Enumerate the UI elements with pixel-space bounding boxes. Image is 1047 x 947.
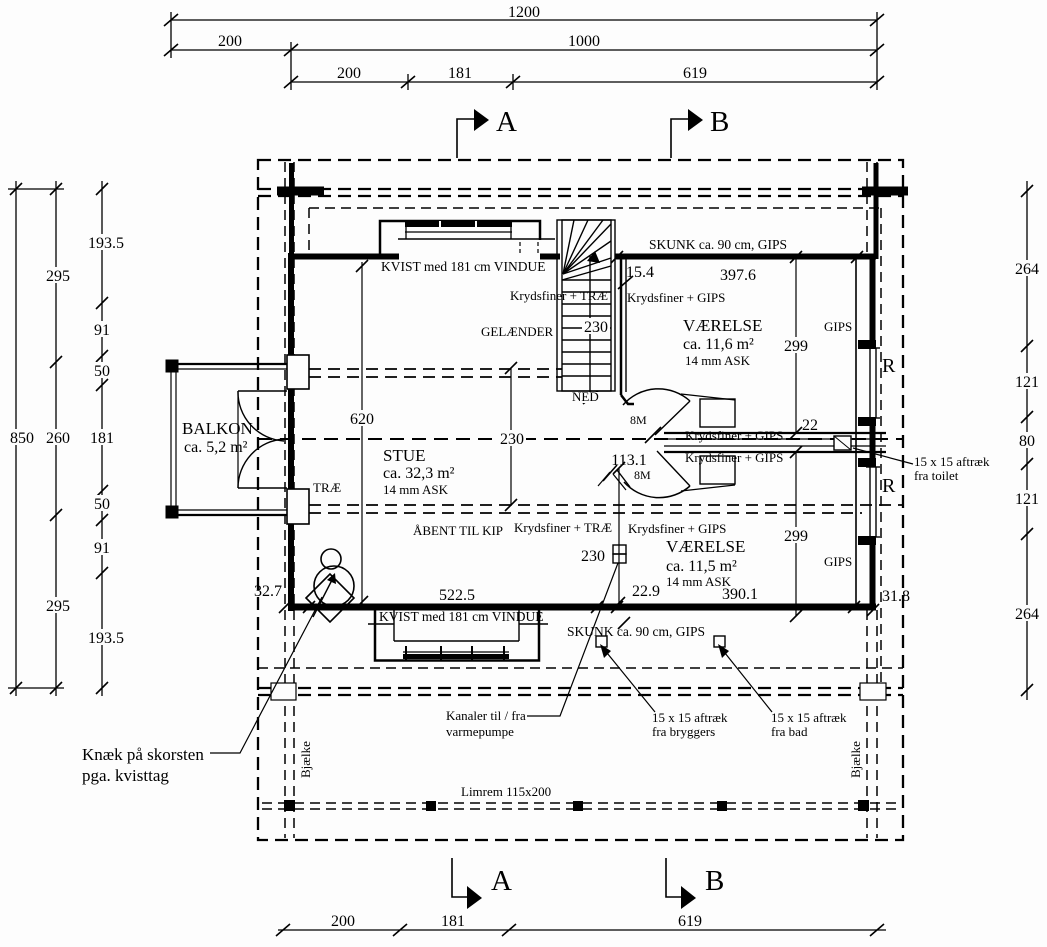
svg-text:121: 121 [1015,491,1039,508]
svg-text:295: 295 [46,268,70,285]
svg-text:1000: 1000 [568,33,600,50]
svg-text:230: 230 [500,431,524,448]
svg-text:ca. 11,5 m²: ca. 11,5 m² [666,558,737,575]
svg-text:Krydsfiner + GIPS: Krydsfiner + GIPS [685,428,783,443]
svg-text:181: 181 [441,913,465,930]
svg-text:Kanaler til / fra: Kanaler til / fra [446,708,526,723]
svg-text:619: 619 [683,65,707,82]
svg-text:121: 121 [1015,374,1039,391]
svg-text:200: 200 [337,65,361,82]
svg-text:260: 260 [46,430,70,447]
svg-text:181: 181 [448,65,472,82]
svg-text:299: 299 [784,528,808,545]
svg-text:91: 91 [94,322,110,339]
svg-text:fra bad: fra bad [771,724,808,739]
svg-text:ca. 5,2 m²: ca. 5,2 m² [184,439,248,456]
svg-text:264: 264 [1015,606,1039,623]
svg-text:fra toilet: fra toilet [914,468,959,483]
svg-text:KVIST med 181 cm VINDUE: KVIST med 181 cm VINDUE [379,609,544,624]
svg-text:264: 264 [1015,261,1039,278]
svg-text:619: 619 [678,913,702,930]
svg-text:620: 620 [350,411,374,428]
svg-text:BALKON: BALKON [182,419,253,438]
svg-text:295: 295 [46,598,70,615]
svg-text:SKUNK ca. 90 cm, GIPS: SKUNK ca. 90 cm, GIPS [567,624,705,639]
svg-text:R: R [882,475,896,497]
svg-text:193.5: 193.5 [88,630,124,647]
svg-text:VÆRELSE: VÆRELSE [666,537,745,556]
svg-text:Limrem 115x200: Limrem 115x200 [461,784,551,799]
svg-text:ca. 11,6 m²: ca. 11,6 m² [683,336,754,353]
svg-text:850: 850 [10,430,34,447]
svg-text:1200: 1200 [508,4,540,21]
svg-text:80: 80 [1019,433,1035,450]
svg-text:fra bryggers: fra bryggers [652,724,715,739]
svg-text:50: 50 [94,496,110,513]
svg-text:VÆRELSE: VÆRELSE [683,316,762,335]
svg-text:GIPS: GIPS [824,554,852,569]
svg-text:NED: NED [572,389,599,404]
svg-text:181: 181 [90,430,114,447]
svg-text:GIPS: GIPS [824,319,852,334]
svg-text:32.7: 32.7 [254,583,282,600]
svg-text:230: 230 [581,548,605,565]
svg-text:Krydsfiner + GIPS: Krydsfiner + GIPS [685,450,783,465]
svg-text:8M: 8M [630,413,647,427]
svg-text:8M: 8M [634,468,651,482]
svg-text:R: R [882,355,896,377]
svg-text:A: A [496,106,517,138]
svg-text:SKUNK ca. 90 cm, GIPS: SKUNK ca. 90 cm, GIPS [649,237,787,252]
svg-text:Krydsfiner + GIPS: Krydsfiner + GIPS [627,290,725,305]
svg-text:pga. kvisttag: pga. kvisttag [82,766,169,785]
svg-text:Bjælke: Bjælke [298,741,313,778]
svg-text:522.5: 522.5 [439,587,475,604]
svg-text:STUE: STUE [383,446,426,465]
svg-text:KVIST med 181 cm VINDUE: KVIST med 181 cm VINDUE [381,259,546,274]
svg-text:15 x 15 aftræk: 15 x 15 aftræk [914,454,990,469]
svg-text:Krydsfiner + TRÆ: Krydsfiner + TRÆ [510,288,608,303]
svg-text:B: B [705,865,724,897]
svg-text:15.4: 15.4 [626,264,654,281]
svg-text:15 x 15 aftræk: 15 x 15 aftræk [652,710,728,725]
svg-text:A: A [491,865,512,897]
svg-text:14 mm ASK: 14 mm ASK [685,353,751,368]
svg-text:390.1: 390.1 [722,586,758,603]
svg-text:Krydsfiner + TRÆ: Krydsfiner + TRÆ [514,520,612,535]
svg-text:22.9: 22.9 [632,583,660,600]
svg-text:14 mm ASK: 14 mm ASK [383,482,449,497]
svg-text:15 x 15 aftræk: 15 x 15 aftræk [771,710,847,725]
svg-text:Knæk på skorsten: Knæk på skorsten [82,745,204,764]
svg-text:193.5: 193.5 [88,235,124,252]
svg-text:ÅBENT TIL KIP: ÅBENT TIL KIP [413,523,503,538]
svg-text:230: 230 [584,319,608,336]
svg-text:397.6: 397.6 [720,267,756,284]
svg-text:200: 200 [331,913,355,930]
svg-text:22: 22 [802,417,818,434]
svg-text:Krydsfiner + GIPS: Krydsfiner + GIPS [628,521,726,536]
svg-text:91: 91 [94,540,110,557]
svg-text:50: 50 [94,363,110,380]
svg-text:ca. 32,3 m²: ca. 32,3 m² [383,465,455,482]
svg-text:GELÆNDER: GELÆNDER [481,324,554,339]
svg-text:113.1: 113.1 [611,452,646,469]
svg-text:B: B [710,106,729,138]
svg-text:Bjælke: Bjælke [848,741,863,778]
svg-text:varmepumpe: varmepumpe [446,724,514,739]
svg-text:TRÆ: TRÆ [313,480,341,495]
svg-text:200: 200 [218,33,242,50]
svg-text:299: 299 [784,338,808,355]
svg-text:31.8: 31.8 [882,588,910,605]
